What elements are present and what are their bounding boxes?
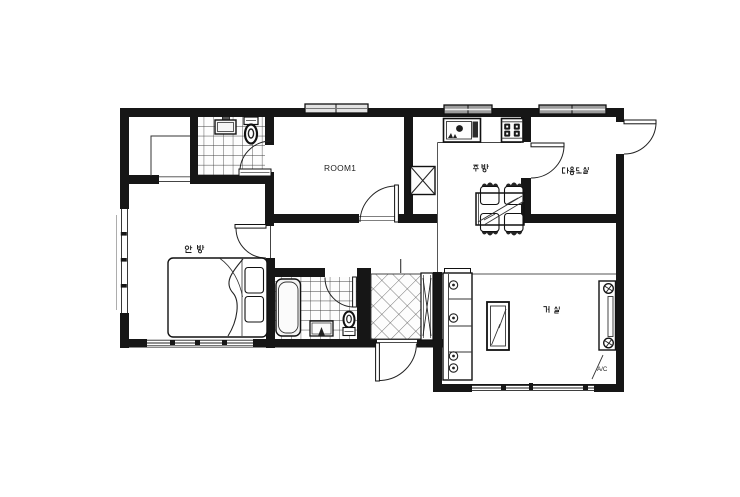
svg-text:ROOM1: ROOM1 (324, 163, 356, 173)
svg-text:A/C: A/C (597, 366, 608, 373)
